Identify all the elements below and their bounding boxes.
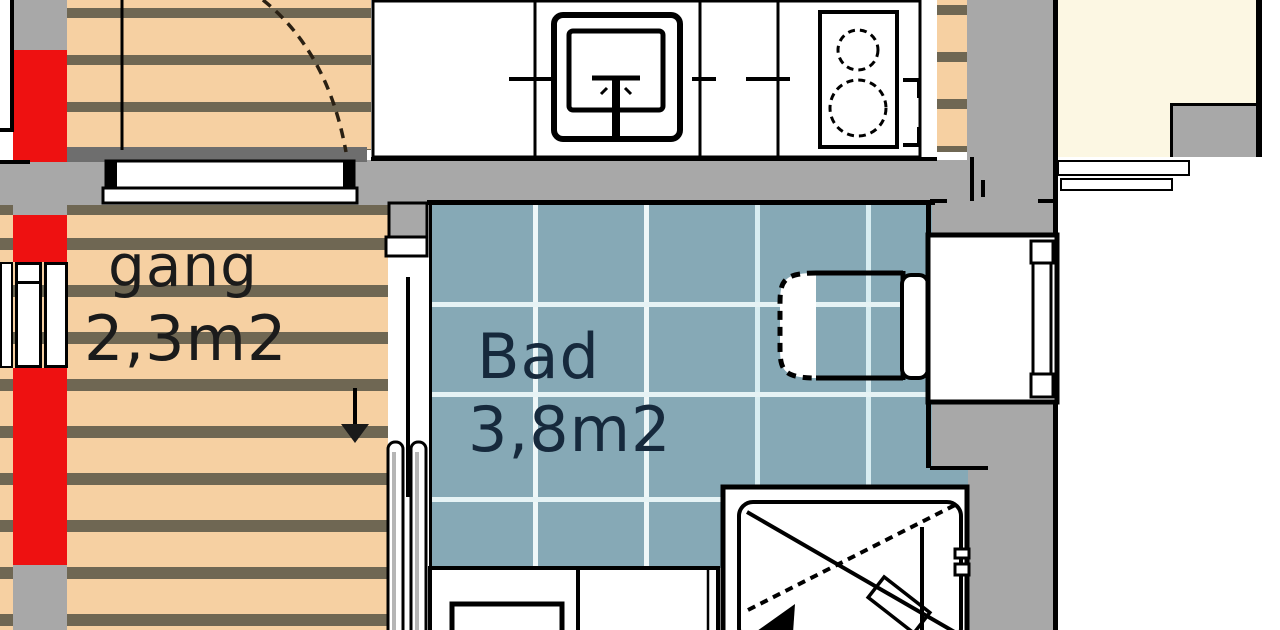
shower-valve: [868, 577, 930, 630]
counter-outline: [373, 1, 920, 157]
left-door-panel: [15, 262, 42, 368]
tile-grout-line: [644, 205, 649, 568]
vanity-outline: [430, 568, 718, 630]
gang-room-area: 2,3m2: [84, 308, 287, 370]
window-slab: [1057, 160, 1190, 176]
bathroom-door-threshold: [388, 205, 432, 630]
sink-basin: [569, 31, 663, 110]
burner-icon: [838, 30, 878, 70]
shower-arrow: [757, 604, 795, 630]
left-door-panel: [44, 262, 68, 368]
tile-grout-line: [755, 205, 760, 568]
left-edge-lines: [0, 0, 14, 132]
section-wall-red: [13, 215, 67, 262]
wall-notch-line: [930, 466, 988, 470]
burner-icon: [830, 80, 886, 136]
appliance-bracket: [903, 80, 919, 145]
kitchen-sink: [554, 15, 680, 139]
section-wall-red: [13, 50, 67, 162]
wall-segment: [13, 565, 67, 630]
staircase: [67, 0, 371, 150]
wall-vertical-right: [967, 0, 1055, 630]
left-door-panel: [0, 262, 13, 368]
wall-jog-top: [930, 205, 967, 235]
kitchen-counter: [371, 1, 937, 161]
sink-outer: [554, 15, 680, 139]
tile-grout-line: [432, 302, 932, 307]
stove: [820, 12, 897, 147]
wall-segment: [13, 162, 67, 215]
tile-grout-line: [432, 497, 932, 502]
washbasin: [452, 604, 562, 630]
bathroom-tile-patch: [932, 470, 968, 487]
stairs-landing-edge: [67, 147, 367, 162]
faucet-handles: [601, 88, 631, 94]
left-door-panel-divider: [15, 281, 42, 284]
section-wall-red: [13, 368, 67, 565]
floor-plan: gang 2,3m2 Bad 3,8m2: [0, 0, 1280, 630]
wall-segment: [13, 0, 67, 50]
gang-room-name: gang: [108, 237, 258, 295]
wall-horizontal: [0, 160, 970, 205]
counter-dividers: [535, 1, 778, 157]
window-slab: [1060, 178, 1173, 191]
washbasin-counter: [430, 568, 718, 630]
kitchen-wood-strip: [937, 0, 967, 152]
stove-outline: [820, 12, 897, 147]
tile-grout-line: [866, 205, 871, 568]
bad-room-area: 3,8m2: [468, 399, 671, 461]
bad-room-name: Bad: [477, 326, 600, 388]
adjacent-room-wall-block: [1170, 103, 1260, 157]
wall-jog-bottom: [930, 402, 968, 467]
wall-tick: [0, 128, 14, 132]
adjacent-room-wall-line: [1256, 0, 1262, 157]
